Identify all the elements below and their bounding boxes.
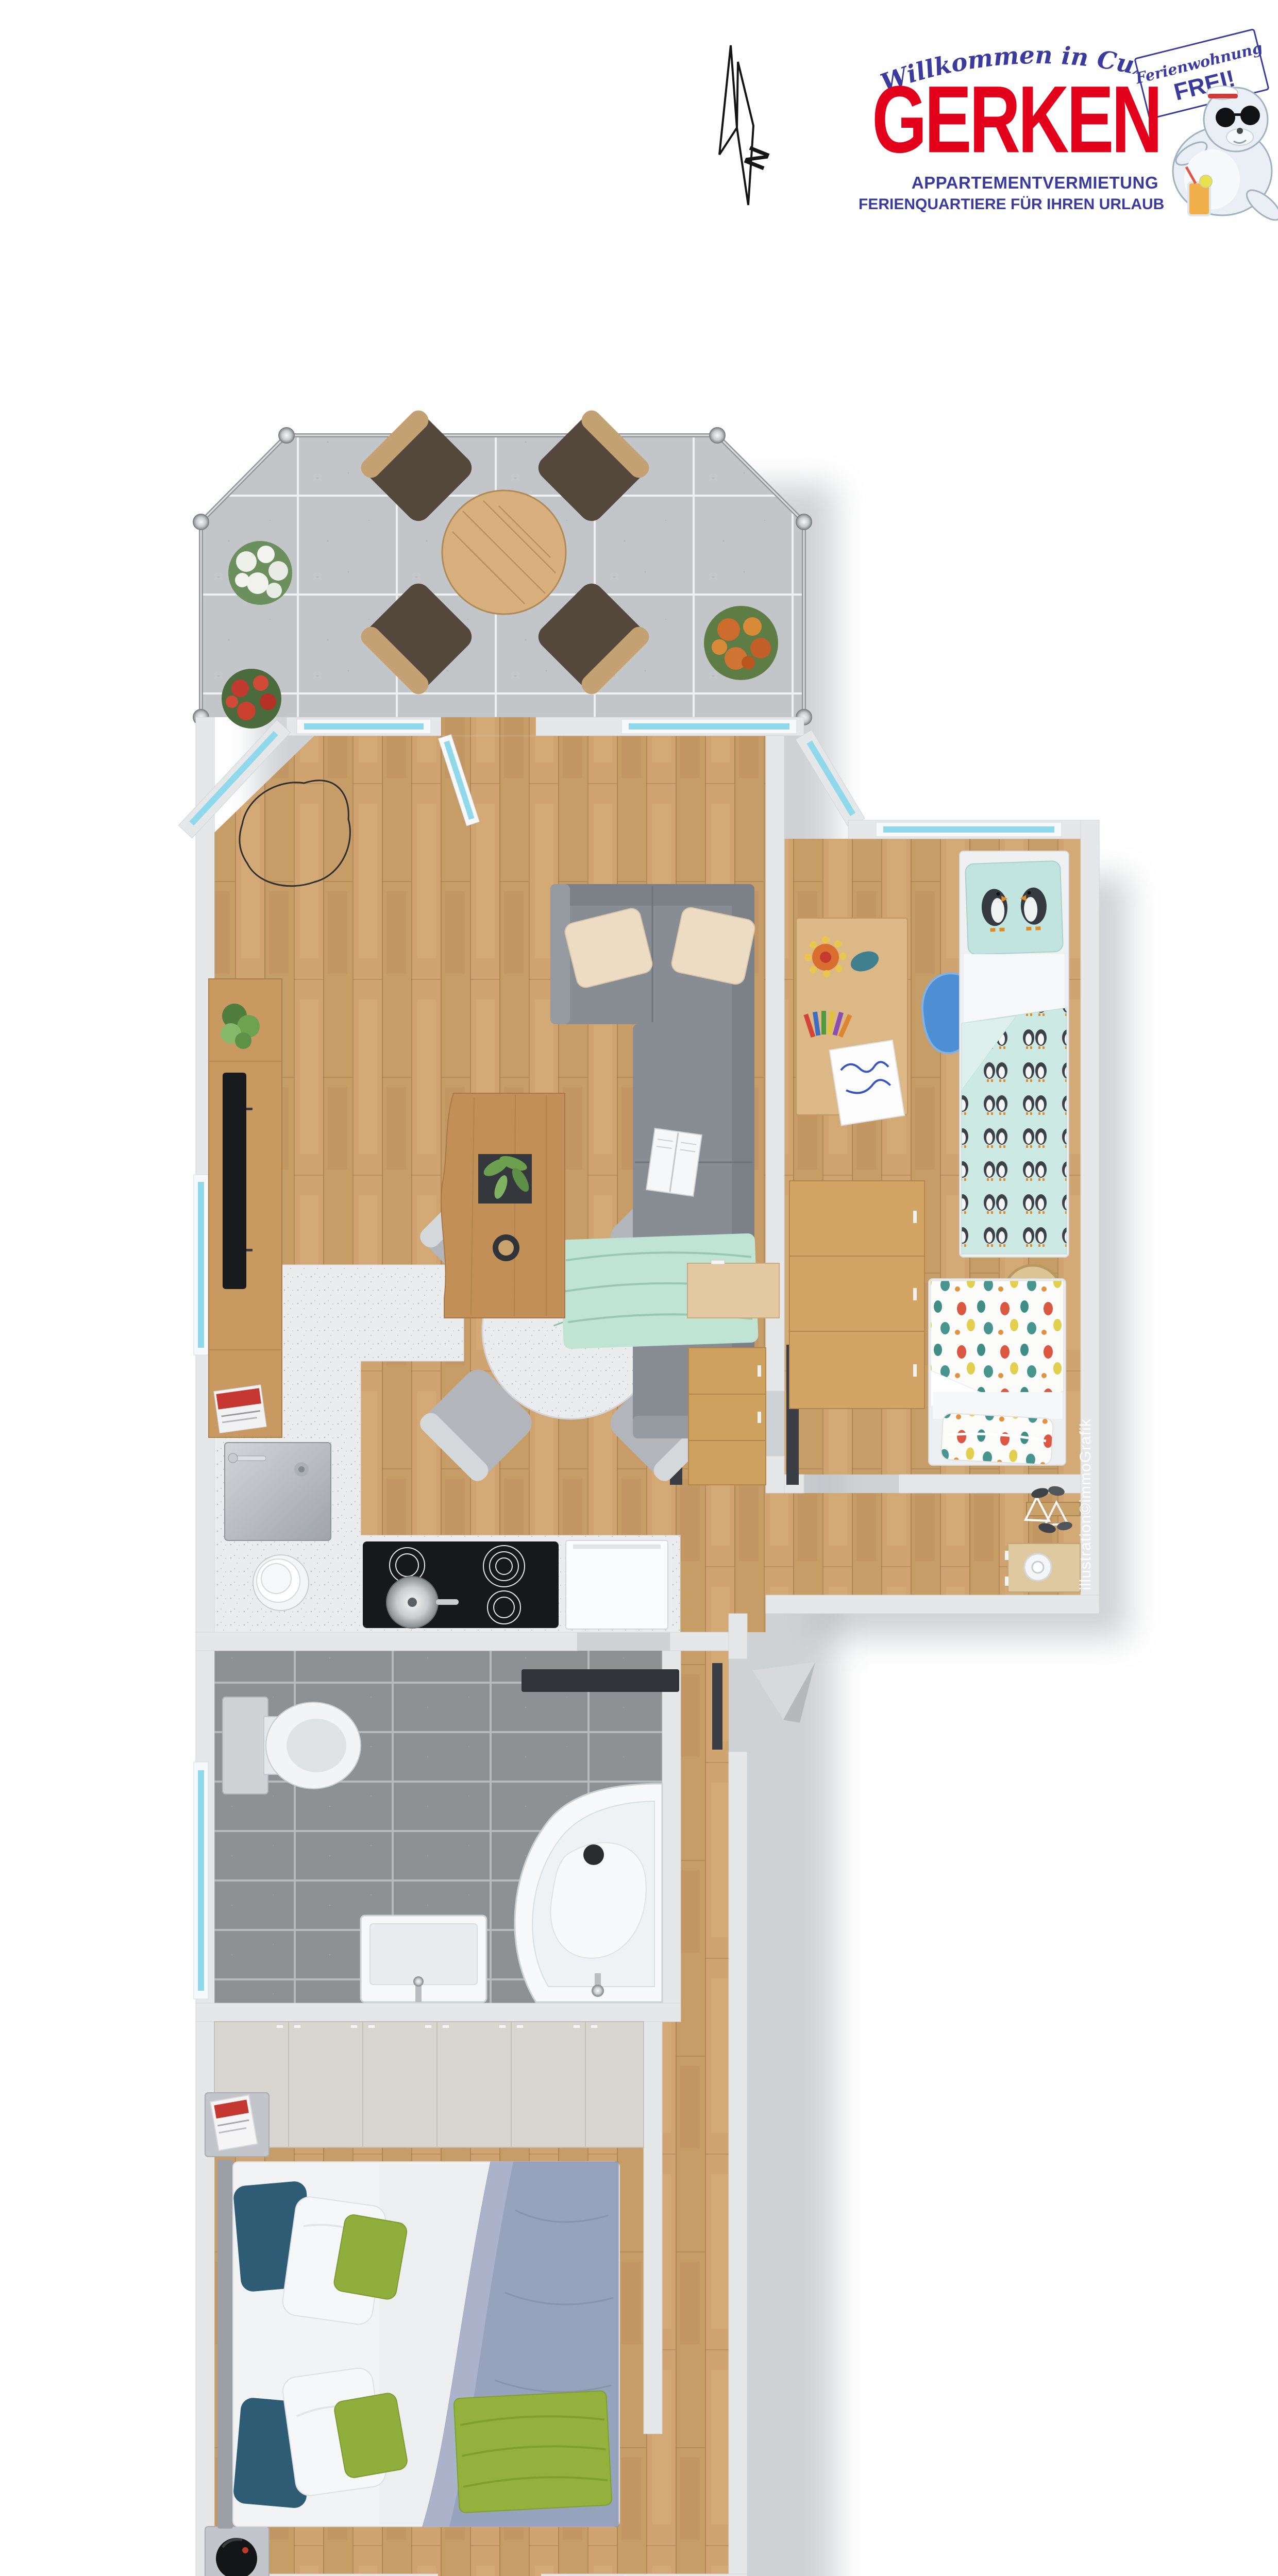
toilet — [223, 1697, 361, 1794]
washbasin — [361, 1916, 486, 2002]
wall-corridor-right — [729, 1752, 747, 2576]
toy-sun — [804, 936, 847, 977]
balcony-top — [193, 406, 812, 728]
drawing-paper — [829, 1040, 904, 1126]
nightstand — [205, 2527, 269, 2576]
tub-drain — [583, 1844, 604, 1865]
wall-bath-bottom — [196, 2003, 681, 2022]
open-book — [646, 1128, 702, 1196]
tv-flatscreen — [223, 1073, 246, 1289]
bedroom-balcony-door-gap — [438, 2574, 541, 2576]
built-in-wardrobe — [214, 2022, 644, 2147]
play-table — [796, 918, 907, 1125]
window — [621, 719, 797, 734]
plant-white-flowers — [228, 541, 292, 605]
headboard — [217, 2160, 233, 2529]
floorplan-page: N Willkommen in Cuxhaven Ferienwohnung F… — [0, 0, 1278, 2576]
bathroom-shelf — [522, 1669, 679, 1692]
north-arrow-icon: N — [719, 45, 777, 205]
pillow-green — [333, 2213, 408, 2300]
plate-stack — [253, 1555, 309, 1611]
brand-subtitle-1: APPARTEMENTVERMIETUNG — [876, 173, 1158, 193]
double-bed — [217, 2160, 619, 2529]
kids-bed-penguin — [960, 851, 1069, 1257]
wall-hall-bottom — [766, 1595, 1099, 1614]
green-blanket — [453, 2391, 612, 2513]
wall-bath-top — [196, 1632, 577, 1651]
nightstand — [205, 2093, 269, 2157]
tv-sideboard — [209, 979, 282, 1437]
window-bathroom — [194, 1762, 208, 1999]
floorplan-graphic: N Willkommen in Cuxhaven Ferienwohnung F… — [0, 0, 1278, 2576]
plant-red-flowers — [222, 669, 281, 728]
window — [297, 719, 431, 734]
kitchen-sink — [225, 1443, 331, 1540]
hall-sideboard — [687, 1260, 779, 1485]
cooktop — [363, 1541, 559, 1628]
wall-bedroom-nook — [644, 2022, 662, 2434]
window-kids — [876, 822, 1062, 837]
tub-faucet — [592, 1985, 603, 1996]
garden-table — [442, 490, 566, 614]
dishwasher — [566, 1540, 668, 1629]
entrance-door-leaf — [712, 1663, 722, 1750]
window-kitchen — [194, 1175, 208, 1355]
wall-bedroom-bottom — [541, 2574, 747, 2576]
kids-dresser — [789, 1181, 924, 1409]
plant-orange-bush — [704, 606, 778, 680]
shoe-cabinet — [1005, 1544, 1080, 1592]
brand-subtitle-2: FERIENQUARTIERE FÜR IHREN URLAUB — [859, 196, 1158, 213]
penguin-pillow — [965, 861, 1063, 955]
coffee-table — [441, 1093, 565, 1318]
wall-bath-right — [662, 1651, 681, 2003]
illustrator-watermark: illustration©immoGrafik — [1077, 1418, 1094, 1590]
bedroom — [205, 2022, 644, 2576]
magazine — [210, 2095, 258, 2150]
pillow-green — [333, 2392, 408, 2479]
kids-bed-birds — [929, 1279, 1066, 1465]
brand-logo: GERKEN — [872, 72, 1160, 167]
magazines — [214, 1385, 267, 1433]
